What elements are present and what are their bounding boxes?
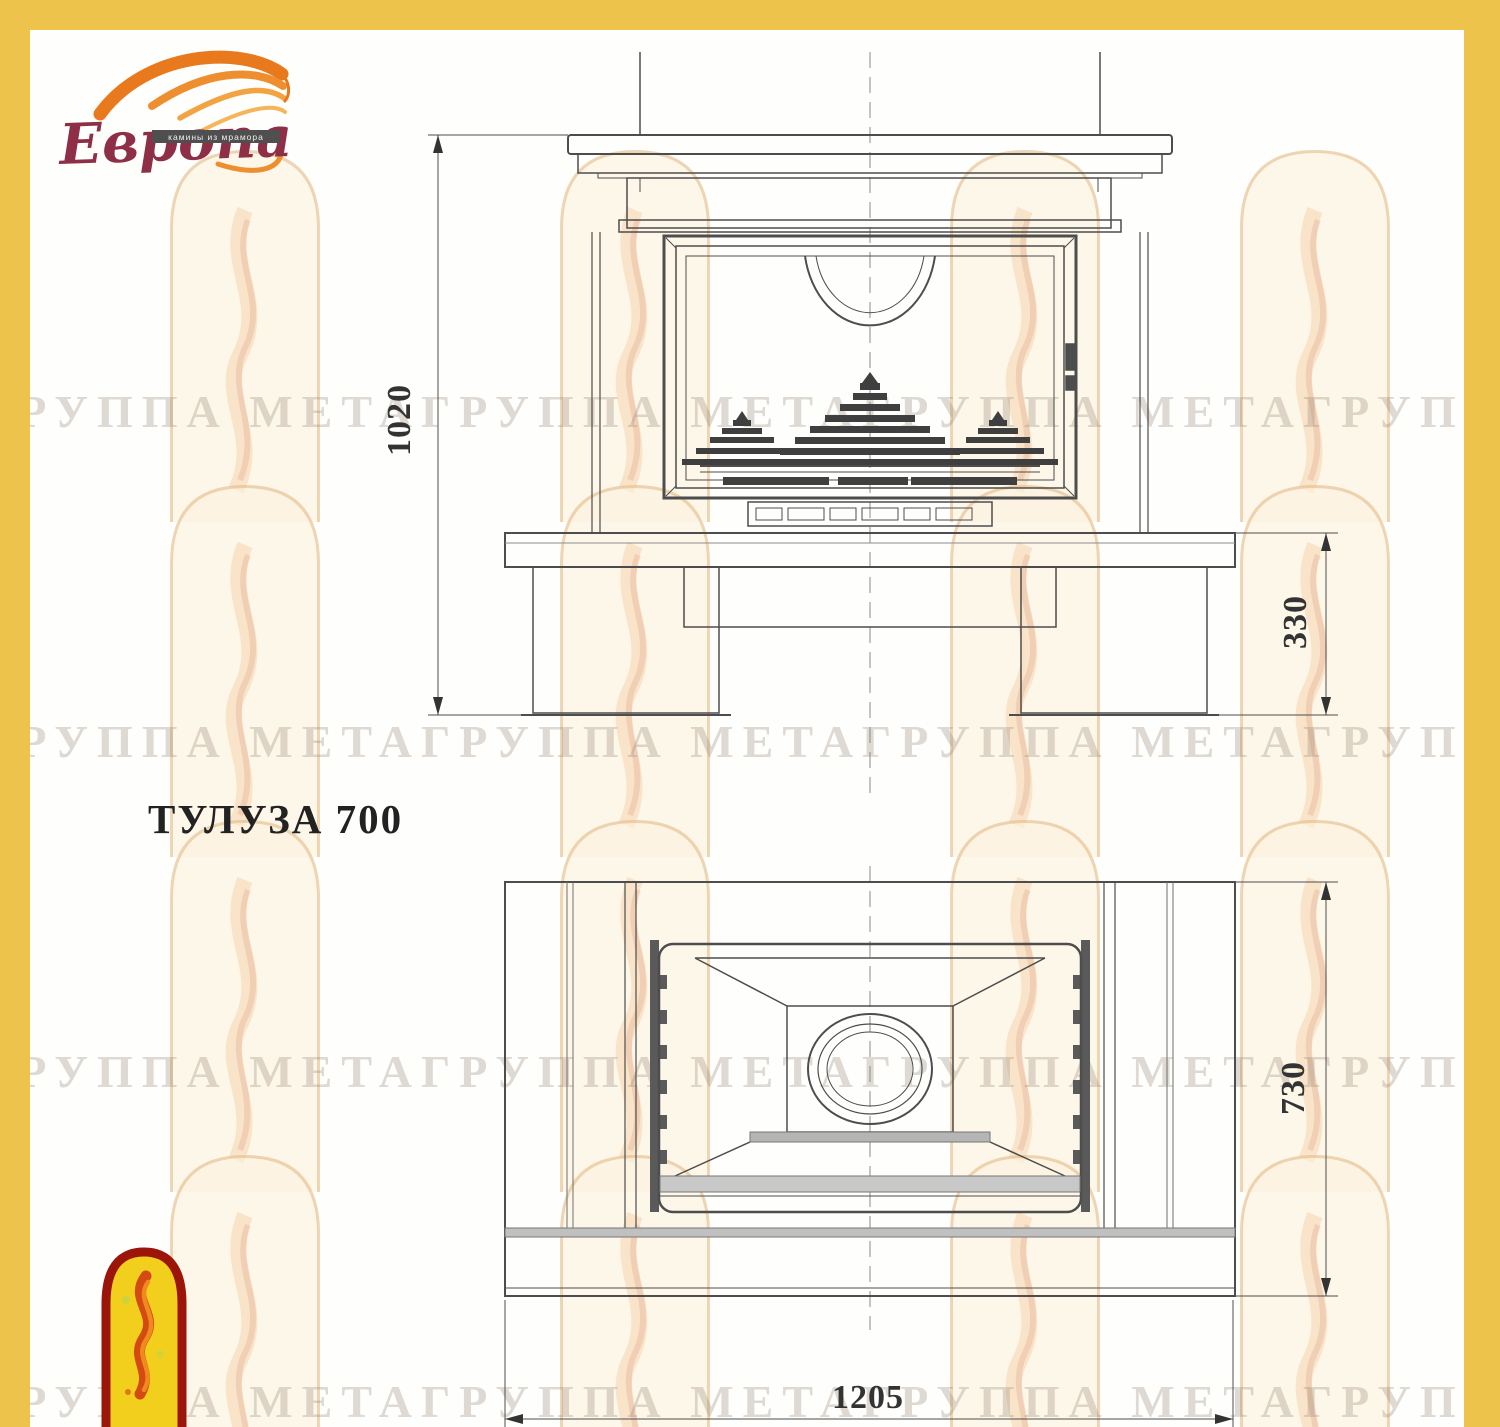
logo-flame-icon: Европа камины из мрамора [40, 22, 290, 192]
brand-logo: Европа камины из мрамора [40, 22, 290, 192]
dimension-label-hearth-height: 330 [1277, 595, 1315, 649]
technical-drawing [0, 0, 1500, 1427]
dimension-label-front-height: 1020 [381, 384, 419, 456]
meta-badge [98, 1242, 190, 1427]
insert-wall-right [1081, 940, 1090, 1212]
page: ГРУППА МЕТАГРУППА МЕТАГРУППА МЕТАГРУППА … [0, 0, 1500, 1427]
page-border-left [0, 0, 30, 1427]
dimension-label-top-depth: 730 [1275, 1061, 1313, 1115]
page-border-top [0, 0, 1500, 30]
door-handle [1066, 344, 1074, 370]
dimension-label-top-width: 1205 [832, 1379, 904, 1417]
insert-front-rail [660, 1176, 1080, 1192]
base-leg-left [533, 567, 719, 713]
logo-tagline: камины из мрамора [168, 132, 264, 142]
page-border-right [1464, 0, 1500, 1427]
product-title: ТУЛУЗА 700 [148, 795, 403, 843]
top-view-drawing [505, 866, 1338, 1427]
dim-lines-1020 [428, 135, 568, 715]
base-leg-right [1021, 567, 1207, 713]
front-view-drawing [428, 52, 1338, 795]
meta-badge-icon [98, 1242, 190, 1427]
insert-wall-left [650, 940, 659, 1212]
fire-grate [682, 372, 1058, 485]
